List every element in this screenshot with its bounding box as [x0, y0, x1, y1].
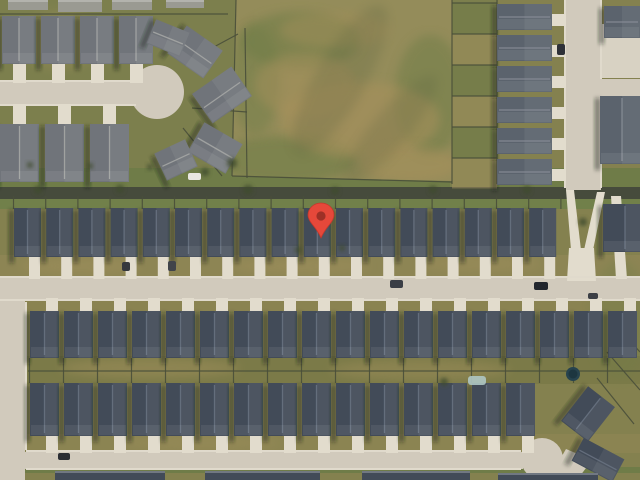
car	[58, 453, 70, 460]
map-viewport[interactable]	[0, 0, 640, 480]
car	[122, 262, 130, 271]
car	[557, 44, 565, 55]
car	[168, 261, 176, 271]
house-row-bottom-row-lower	[25, 383, 535, 442]
alley-road	[0, 187, 640, 199]
open-field	[215, 0, 465, 195]
car	[188, 173, 201, 180]
house-row-middle-row	[9, 208, 556, 263]
house-row-culdesac-row-upper	[0, 16, 153, 70]
satellite-imagery	[0, 0, 640, 480]
swimming-pool	[468, 376, 486, 385]
house-row-bottom-row-upper	[25, 311, 637, 364]
house-row-culdesac-row-lower	[0, 124, 129, 188]
car	[534, 282, 548, 290]
car	[588, 293, 598, 299]
car	[390, 280, 403, 288]
